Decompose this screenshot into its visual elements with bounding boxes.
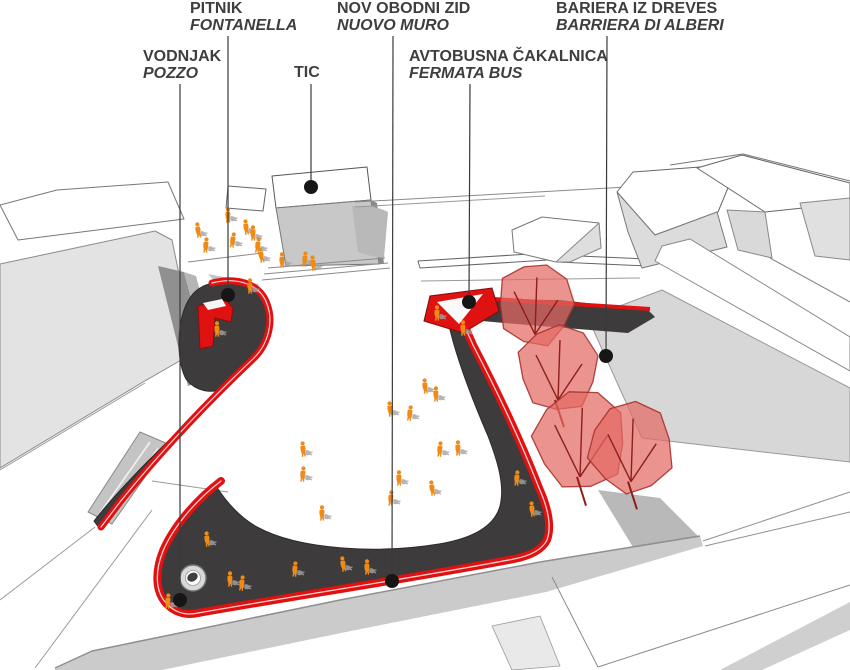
road-line	[703, 492, 850, 541]
step-line	[262, 268, 390, 280]
person-figure	[229, 232, 237, 248]
sketch-line	[0, 527, 95, 600]
sketch-line	[552, 577, 598, 667]
person-figure	[243, 219, 250, 235]
person-figure	[250, 225, 255, 241]
annotation-dot-pitnik	[221, 288, 235, 302]
site-plan-stage: PITNIKFONTANELLAVODNJAKPOZZOTICNOV OBODN…	[0, 0, 850, 670]
person-figure	[300, 466, 307, 482]
leader-line-avtobusna-cakalnica	[469, 84, 470, 302]
person-figure	[433, 386, 438, 402]
background-buildings	[0, 154, 850, 670]
ramp	[88, 432, 168, 524]
slab-building-side	[800, 198, 850, 260]
person-figure	[429, 480, 436, 496]
person-figure	[437, 441, 444, 457]
annotation-dot-tic	[304, 180, 318, 194]
person-figure	[279, 252, 284, 267]
low-wall	[226, 186, 266, 211]
person-figure	[300, 441, 306, 457]
person-figure	[203, 237, 210, 253]
annotation-dot-avtobusna-cakalnica	[462, 295, 476, 309]
person-figure	[455, 440, 460, 456]
annotation-dot-bariera-iz-dreves	[599, 349, 613, 363]
corner-gray-band	[720, 602, 850, 670]
step-line	[188, 253, 262, 262]
person-figure	[195, 222, 202, 238]
person-figure	[422, 378, 428, 394]
person-figure	[406, 405, 413, 421]
road-line	[705, 512, 850, 546]
slab-building-face	[727, 210, 772, 258]
person-figure	[388, 490, 394, 506]
person-figure	[319, 505, 324, 521]
person-figure	[396, 470, 401, 486]
driveway	[492, 616, 560, 670]
well	[180, 565, 206, 591]
annotation-dot-vodnjak	[173, 593, 187, 607]
building-top-left-face	[0, 231, 195, 468]
site-plan-drawing	[0, 0, 850, 670]
annotation-dot-nov-obodni-zid	[385, 574, 399, 588]
sketch-line	[355, 196, 545, 207]
